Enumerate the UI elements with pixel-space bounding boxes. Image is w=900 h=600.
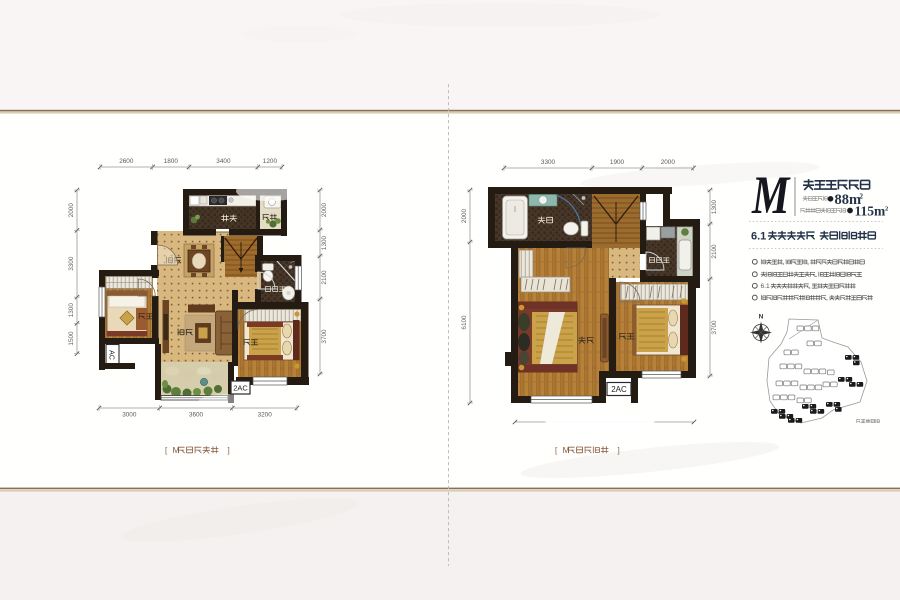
svg-text:3600: 3600 — [189, 412, 204, 419]
svg-text:]: ] — [618, 446, 620, 455]
svg-text:1900: 1900 — [610, 159, 625, 166]
svg-text:]: ] — [228, 446, 230, 455]
svg-text:1800: 1800 — [164, 158, 179, 165]
svg-text:3700: 3700 — [711, 320, 718, 335]
svg-text:6.1: 6.1 — [751, 230, 766, 242]
svg-text:3300: 3300 — [541, 159, 556, 166]
svg-text:2000: 2000 — [661, 159, 676, 166]
svg-text:2100: 2100 — [711, 244, 718, 259]
svg-text:2AC: 2AC — [233, 384, 248, 393]
svg-text:2600: 2600 — [119, 158, 134, 165]
svg-text:3300: 3300 — [68, 256, 75, 271]
svg-text:2AC: 2AC — [611, 385, 627, 394]
svg-text:3400: 3400 — [216, 158, 231, 165]
svg-text:115m: 115m — [855, 203, 887, 218]
svg-text:3700: 3700 — [321, 329, 328, 344]
svg-text:3000: 3000 — [122, 412, 137, 419]
svg-text:1300: 1300 — [321, 235, 328, 250]
svg-text:2000: 2000 — [68, 203, 75, 218]
svg-text:2100: 2100 — [321, 270, 328, 285]
svg-text:N: N — [759, 314, 764, 321]
svg-text:6100: 6100 — [461, 315, 468, 330]
svg-text:2000: 2000 — [321, 202, 328, 217]
svg-text:1300: 1300 — [711, 199, 718, 214]
svg-text:3200: 3200 — [258, 412, 273, 419]
svg-text:2000: 2000 — [461, 208, 468, 223]
svg-text:1200: 1200 — [263, 158, 278, 165]
svg-text:1500: 1500 — [68, 331, 75, 346]
svg-text:6.1: 6.1 — [761, 283, 770, 290]
svg-text:1300: 1300 — [68, 303, 75, 318]
svg-text:M: M — [751, 166, 791, 225]
svg-text:AC: AC — [108, 350, 115, 360]
svg-text:2: 2 — [860, 193, 864, 201]
svg-text:2: 2 — [885, 206, 888, 213]
